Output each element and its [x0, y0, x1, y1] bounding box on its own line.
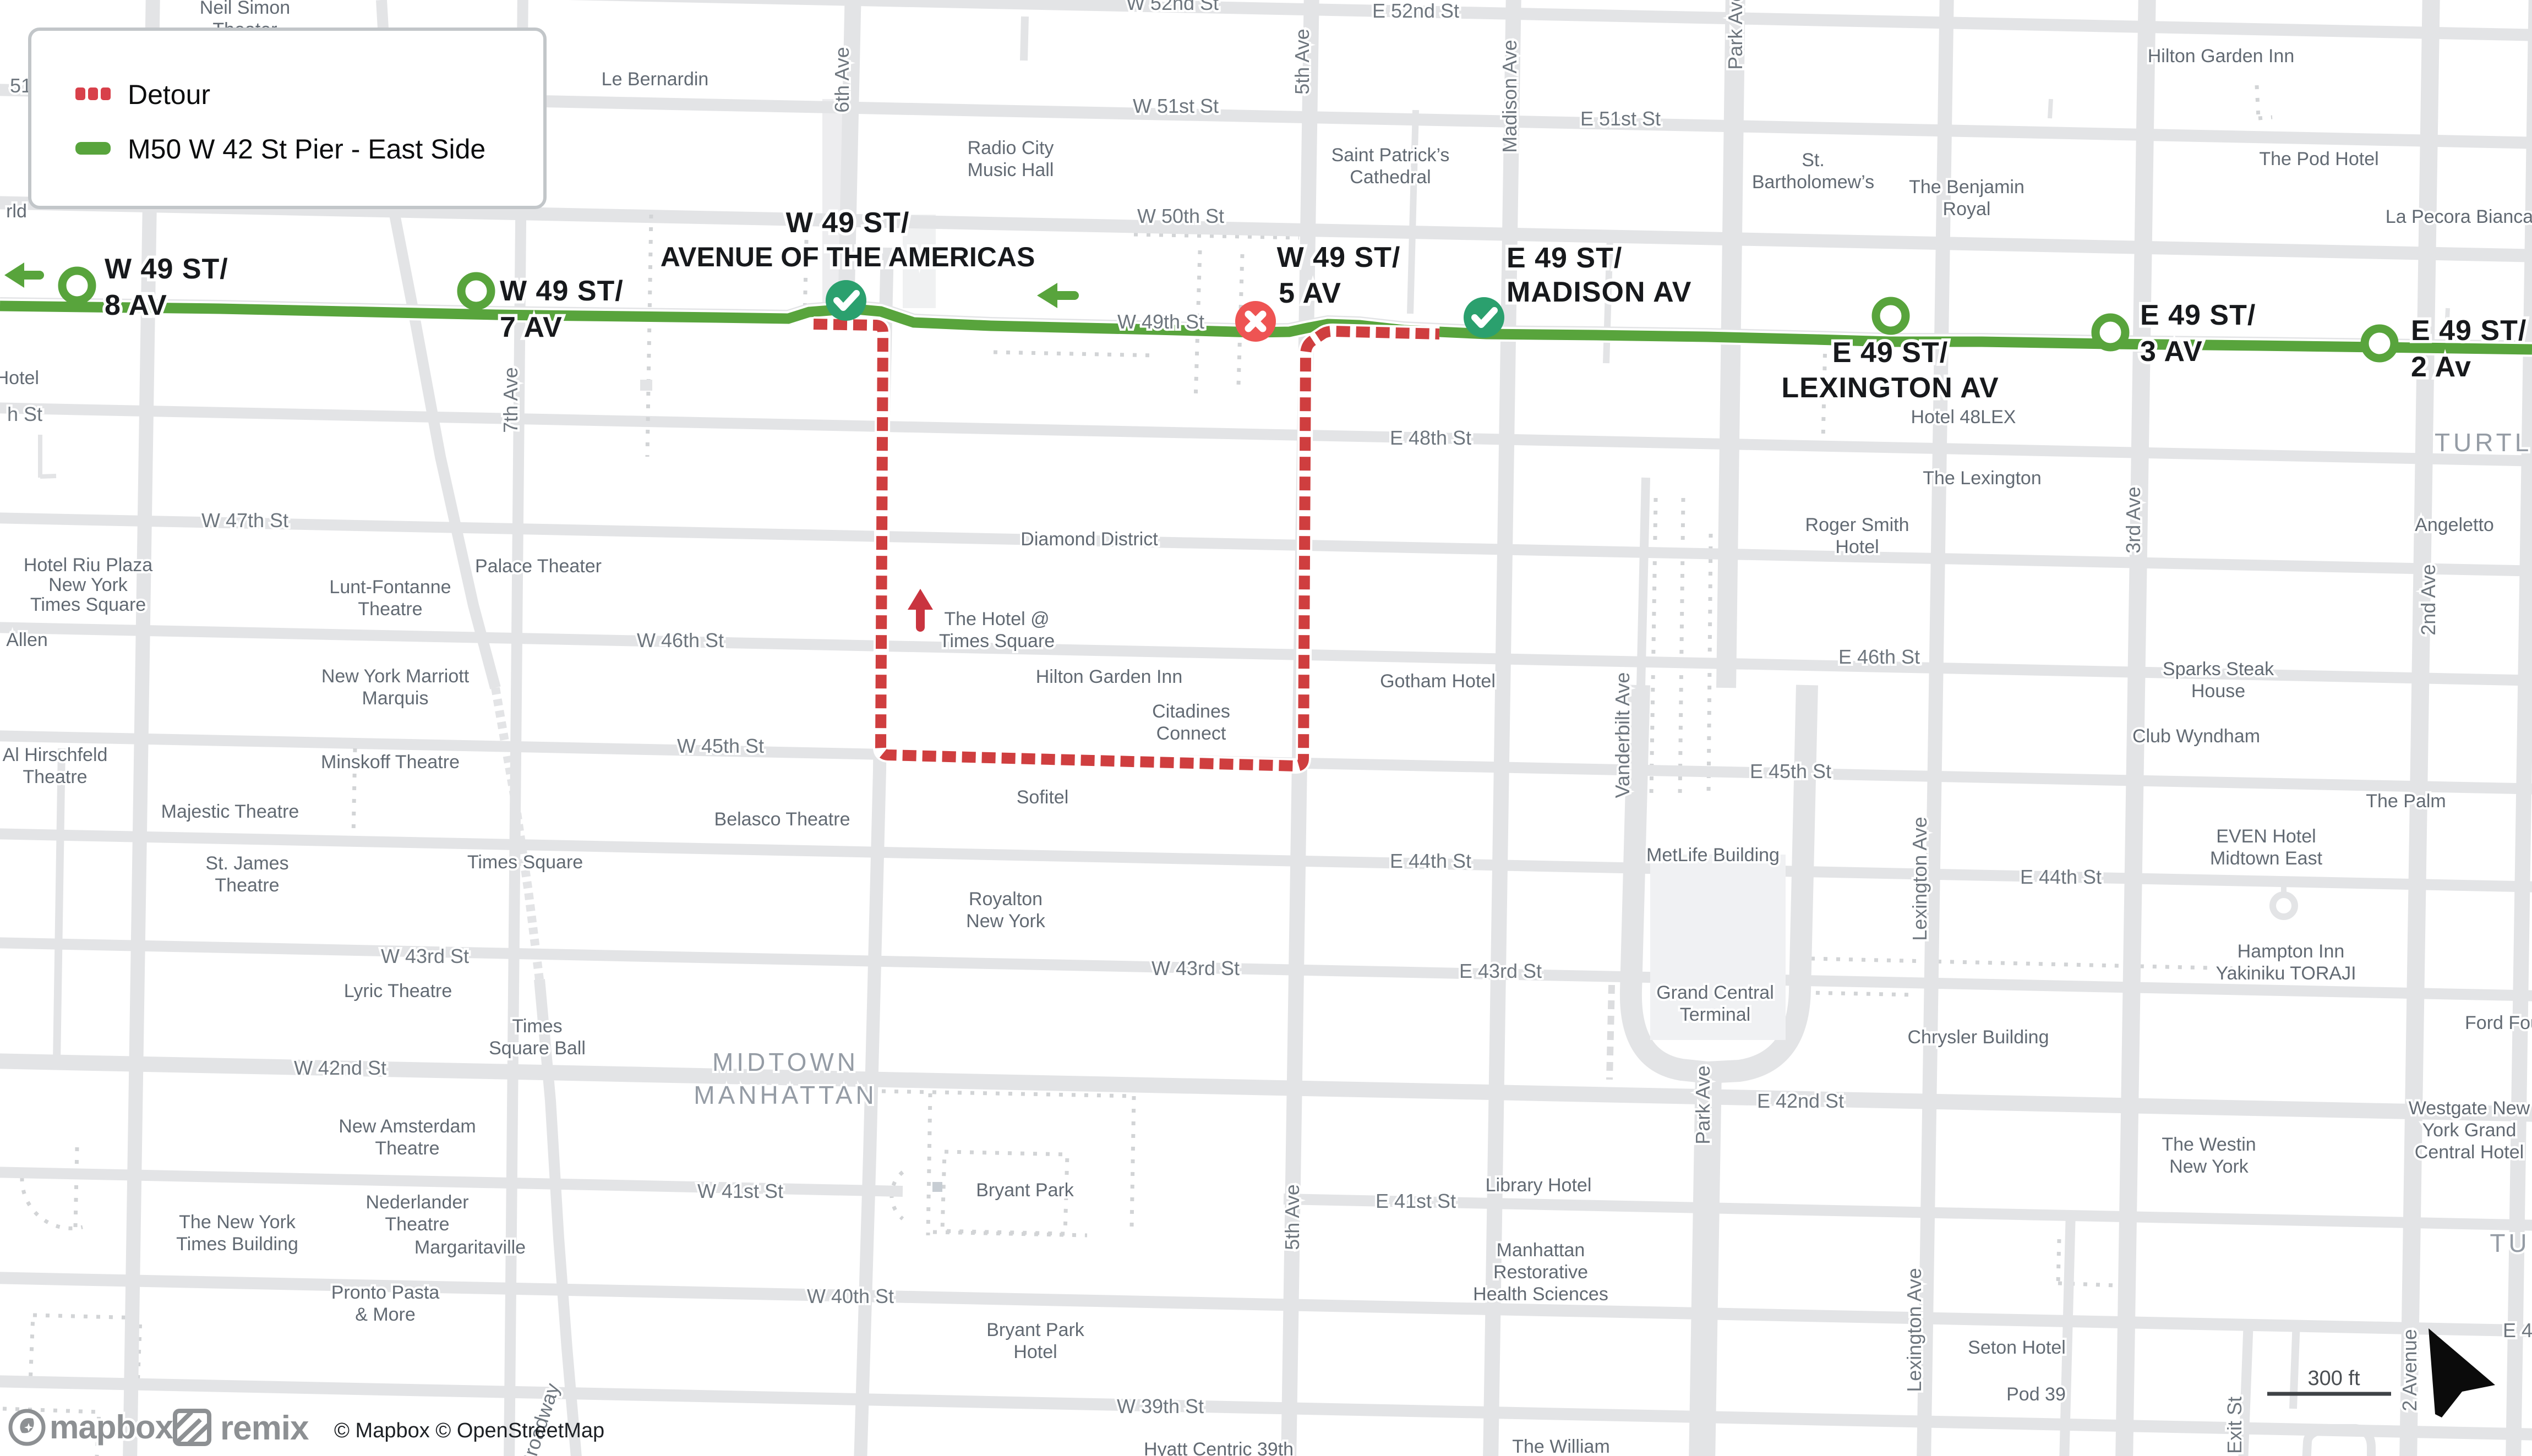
svg-text:Radio City: Radio City: [968, 138, 1054, 158]
svg-text:York Grand: York Grand: [2422, 1120, 2517, 1141]
svg-text:W 49 ST/: W 49 ST/: [500, 275, 624, 307]
svg-text:Diamond District: Diamond District: [1021, 529, 1158, 550]
svg-text:E 42nd St: E 42nd St: [1757, 1090, 1844, 1112]
svg-text:New York: New York: [48, 574, 128, 595]
svg-text:3 AV: 3 AV: [2140, 336, 2203, 368]
svg-text:The Westin: The Westin: [2162, 1134, 2256, 1155]
svg-text:Royal: Royal: [1943, 199, 1991, 220]
svg-text:E 49 ST/: E 49 ST/: [2411, 315, 2526, 347]
svg-text:Times Square: Times Square: [939, 631, 1055, 652]
svg-text:Times Square: Times Square: [467, 852, 583, 873]
svg-text:Hilton Garden Inn: Hilton Garden Inn: [1036, 666, 1183, 687]
svg-text:Roger Smith: Roger Smith: [1805, 514, 1909, 535]
svg-text:Hampton Inn: Hampton Inn: [2238, 941, 2345, 962]
svg-text:Seton Hotel: Seton Hotel: [1968, 1337, 2066, 1358]
svg-text:Hotel: Hotel: [1835, 537, 1879, 557]
svg-text:Cathedral: Cathedral: [1350, 167, 1431, 188]
svg-text:h St: h St: [7, 403, 42, 425]
svg-text:Times Building: Times Building: [176, 1234, 298, 1255]
svg-text:Yakiniku TORAJI: Yakiniku TORAJI: [2215, 963, 2356, 984]
svg-text:2 Avenue: 2 Avenue: [2398, 1329, 2421, 1411]
svg-text:E 52nd St: E 52nd St: [1372, 0, 1459, 22]
svg-text:Club Wyndham: Club Wyndham: [2132, 726, 2260, 747]
svg-text:E 49 ST/: E 49 ST/: [1507, 242, 1622, 274]
svg-text:2nd Ave: 2nd Ave: [2417, 564, 2440, 635]
svg-text:Marquis: Marquis: [362, 688, 429, 709]
svg-text:LEXINGTON AV: LEXINGTON AV: [1781, 372, 1999, 404]
svg-text:W 47th St: W 47th St: [201, 509, 288, 532]
svg-text:Chrysler Building: Chrysler Building: [1908, 1027, 2049, 1048]
svg-text:Sofitel: Sofitel: [1017, 787, 1069, 808]
svg-text:Restorative: Restorative: [1493, 1262, 1588, 1283]
svg-text:New York Marriott: New York Marriott: [321, 666, 470, 687]
svg-text:MetLife Building: MetLife Building: [1646, 845, 1780, 866]
svg-text:Le Bernardin: Le Bernardin: [602, 69, 709, 90]
svg-text:Westgate New: Westgate New: [2409, 1098, 2530, 1119]
svg-text:W 41st St: W 41st St: [697, 1180, 783, 1202]
svg-text:Connect: Connect: [1156, 723, 1226, 744]
svg-text:Saint Patrick’s: Saint Patrick’s: [1332, 145, 1450, 166]
svg-text:Ford Fou: Ford Fou: [2465, 1012, 2532, 1033]
svg-text:Theatre: Theatre: [23, 767, 87, 787]
svg-text:W 49 ST/: W 49 ST/: [105, 253, 228, 285]
svg-text:E 41st St: E 41st St: [1376, 1190, 1456, 1212]
svg-text:Allen: Allen: [6, 630, 48, 650]
svg-text:Theatre: Theatre: [385, 1214, 449, 1235]
svg-text:St. James: St. James: [205, 853, 288, 874]
svg-text:Nederlander: Nederlander: [365, 1192, 468, 1213]
svg-text:New Amsterdam: New Amsterdam: [339, 1116, 476, 1137]
svg-text:Manhattan: Manhattan: [1497, 1240, 1585, 1261]
svg-text:3rd Ave: 3rd Ave: [2122, 486, 2144, 553]
svg-text:Hotel Riu Plaza: Hotel Riu Plaza: [24, 555, 152, 576]
svg-text:Hyatt Centric 39th: Hyatt Centric 39th: [1144, 1439, 1294, 1456]
svg-text:E 48th St: E 48th St: [1390, 426, 1471, 449]
svg-text:New York: New York: [2169, 1156, 2249, 1177]
svg-text:remix: remix: [220, 1409, 309, 1447]
svg-text:E 49 ST/: E 49 ST/: [2140, 299, 2256, 331]
svg-text:W 45th St: W 45th St: [677, 735, 764, 757]
svg-text:W 46th St: W 46th St: [637, 629, 724, 652]
svg-text:Park Ave: Park Ave: [1691, 1065, 1714, 1144]
svg-text:W 43rd St: W 43rd St: [1152, 957, 1240, 979]
svg-text:Royalton: Royalton: [969, 889, 1043, 910]
svg-text:Hilton Garden Inn: Hilton Garden Inn: [2148, 46, 2295, 67]
svg-text:TU: TU: [2490, 1229, 2530, 1257]
svg-text:E 45th St: E 45th St: [1750, 760, 1831, 782]
svg-text:Exit St: Exit St: [2223, 1397, 2246, 1454]
svg-text:Minskoff Theatre: Minskoff Theatre: [321, 752, 460, 773]
svg-text:Citadines: Citadines: [1152, 701, 1230, 722]
svg-text:W 49 ST/: W 49 ST/: [786, 207, 910, 239]
svg-text:Square Ball: Square Ball: [489, 1038, 586, 1059]
svg-text:Bryant Park: Bryant Park: [976, 1180, 1074, 1201]
svg-text:The Palm: The Palm: [2366, 791, 2446, 812]
svg-text:5th Ave: 5th Ave: [1291, 29, 1313, 94]
svg-text:E 46th St: E 46th St: [1838, 645, 1920, 668]
svg-text:Hotel 48LEX: Hotel 48LEX: [1911, 407, 2016, 428]
svg-text:Neil Simon: Neil Simon: [200, 0, 290, 18]
svg-text:Vanderbilt Ave: Vanderbilt Ave: [1611, 672, 1634, 798]
svg-text:W 50th St: W 50th St: [1137, 205, 1224, 227]
svg-text:Al Hirschfeld: Al Hirschfeld: [3, 745, 108, 765]
svg-text:Times Square: Times Square: [30, 594, 146, 615]
svg-text:W 43rd St: W 43rd St: [381, 945, 469, 967]
svg-text:Park Ave: Park Ave: [1724, 0, 1747, 70]
svg-text:© Mapbox © OpenStreetMap: © Mapbox © OpenStreetMap: [334, 1419, 604, 1442]
svg-text:MADISON AV: MADISON AV: [1507, 276, 1691, 308]
svg-text:Hotel: Hotel: [1013, 1342, 1057, 1362]
svg-text:TURTLE: TURTLE: [2435, 428, 2532, 457]
svg-text:rld: rld: [6, 201, 27, 222]
svg-text:E 44th St: E 44th St: [2020, 866, 2102, 888]
svg-text:Central Hotel: Central Hotel: [2415, 1142, 2524, 1163]
svg-text:Bryant Park: Bryant Park: [986, 1320, 1085, 1340]
svg-text:W 40th St: W 40th St: [807, 1285, 894, 1307]
svg-text:Sparks Steak: Sparks Steak: [2163, 659, 2274, 680]
svg-text:Health Sciences: Health Sciences: [1473, 1284, 1608, 1305]
svg-text:Pronto Pasta: Pronto Pasta: [331, 1282, 440, 1303]
svg-text:2 Av: 2 Av: [2411, 351, 2471, 383]
svg-text:Lexington Ave: Lexington Ave: [1903, 1268, 1925, 1392]
svg-text:Majestic Theatre: Majestic Theatre: [161, 801, 299, 822]
svg-text:The New York: The New York: [179, 1212, 296, 1233]
svg-text:Margaritaville: Margaritaville: [414, 1237, 526, 1258]
svg-text:Palace Theater: Palace Theater: [475, 556, 602, 577]
svg-text:Angeletto: Angeletto: [2415, 514, 2494, 535]
svg-text:Library Hotel: Library Hotel: [1486, 1175, 1592, 1196]
svg-text:Bartholomew’s: Bartholomew’s: [1752, 172, 1874, 193]
svg-text:Pod 39: Pod 39: [2006, 1384, 2066, 1405]
svg-text:E 51st St: E 51st St: [1580, 107, 1661, 130]
svg-text:St.: St.: [1802, 150, 1825, 171]
svg-text:Lexington Ave: Lexington Ave: [1908, 817, 1931, 941]
svg-text:E 44th St: E 44th St: [1390, 850, 1471, 872]
svg-text:& More: & More: [355, 1304, 416, 1325]
svg-text:5 AV: 5 AV: [1279, 277, 1341, 309]
svg-text:E 49 ST/: E 49 ST/: [1832, 337, 1948, 369]
svg-text:Times: Times: [512, 1016, 562, 1037]
svg-text:La Pecora Bianca: La Pecora Bianca: [2386, 206, 2532, 227]
svg-text:The William: The William: [1512, 1436, 1610, 1456]
svg-text:Madison Ave: Madison Ave: [1498, 40, 1521, 152]
svg-text:E 43rd St: E 43rd St: [1459, 960, 1542, 982]
svg-text:6th Ave: 6th Ave: [831, 47, 853, 112]
svg-text:W 51st St: W 51st St: [1133, 95, 1219, 117]
svg-text:Belasco Theatre: Belasco Theatre: [714, 809, 850, 830]
svg-text:The Benjamin: The Benjamin: [1909, 177, 2024, 198]
svg-text:7th Ave: 7th Ave: [499, 367, 522, 433]
svg-text:MANHATTAN: MANHATTAN: [694, 1081, 877, 1109]
svg-text:mapbox: mapbox: [50, 1409, 173, 1446]
svg-text:E 4: E 4: [2503, 1319, 2532, 1342]
svg-text:AVENUE OF THE AMERICAS: AVENUE OF THE AMERICAS: [661, 242, 1035, 272]
svg-text:New York: New York: [966, 911, 1046, 932]
svg-text:EVEN Hotel: EVEN Hotel: [2216, 826, 2316, 847]
svg-text:The Hotel @: The Hotel @: [944, 609, 1049, 630]
svg-text:W 42nd St: W 42nd St: [294, 1057, 386, 1079]
svg-text:Gotham Hotel: Gotham Hotel: [1380, 671, 1496, 692]
svg-text:W 52nd St: W 52nd St: [1126, 0, 1219, 14]
svg-text:The Lexington: The Lexington: [1923, 468, 2042, 489]
svg-text:Detour: Detour: [128, 79, 210, 110]
svg-text:Theatre: Theatre: [358, 599, 422, 620]
svg-text:Lunt-Fontanne: Lunt-Fontanne: [329, 577, 451, 598]
svg-text:W 49 ST/: W 49 ST/: [1277, 242, 1401, 273]
svg-text:M50 W 42 St Pier - East Side: M50 W 42 St Pier - East Side: [128, 134, 485, 165]
svg-text:Theatre: Theatre: [375, 1138, 439, 1159]
svg-text:W 49th St: W 49th St: [1117, 310, 1204, 333]
svg-text:Lyric Theatre: Lyric Theatre: [344, 981, 452, 1001]
svg-text:House: House: [2191, 681, 2245, 702]
svg-text:5th Ave: 5th Ave: [1281, 1184, 1303, 1250]
svg-text:The Pod Hotel: The Pod Hotel: [2259, 149, 2378, 169]
svg-text:Terminal: Terminal: [1680, 1004, 1750, 1025]
svg-text:W 39th St: W 39th St: [1117, 1395, 1204, 1417]
svg-text:Midtown East: Midtown East: [2210, 848, 2323, 869]
svg-text:Theatre: Theatre: [215, 875, 279, 896]
svg-text:300 ft: 300 ft: [2307, 1367, 2360, 1390]
svg-text:MIDTOWN: MIDTOWN: [712, 1048, 859, 1076]
svg-text:Music Hall: Music Hall: [968, 160, 1054, 180]
svg-text:8 AV: 8 AV: [105, 289, 167, 321]
svg-text:Grand Central: Grand Central: [1656, 982, 1774, 1003]
svg-text:7 AV: 7 AV: [500, 311, 563, 343]
svg-text:ere Hotel: ere Hotel: [0, 368, 39, 388]
